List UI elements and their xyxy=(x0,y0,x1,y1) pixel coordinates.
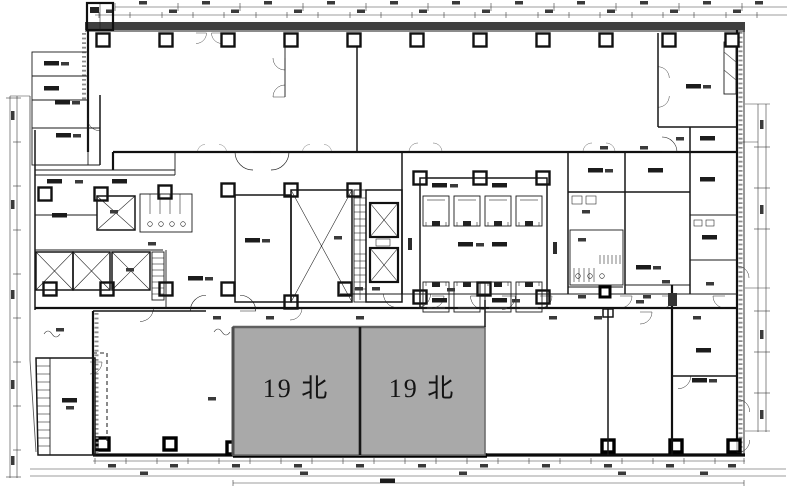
squiggle-mark xyxy=(44,331,60,337)
unit-19-north-a[interactable]: 19 北 xyxy=(233,327,360,455)
dimension-lines-left xyxy=(6,96,30,478)
core-center xyxy=(235,190,402,302)
dimension-lines-bottom xyxy=(30,458,786,486)
upper-left-rooms xyxy=(32,52,100,310)
unit-label: 19 北 xyxy=(263,374,330,403)
squiggle-mark xyxy=(214,329,230,335)
shaft-x-large-icon xyxy=(291,190,352,302)
dimension-lines-top xyxy=(95,1,787,18)
lower-right-rooms xyxy=(603,280,750,455)
shaft-x-icon xyxy=(112,252,150,290)
shaft-x-icon xyxy=(73,252,110,290)
floor-plan-page: 19 北 19 北 xyxy=(0,0,787,487)
core-corridor-east xyxy=(553,152,568,294)
vacant-units: 19 北 19 北 xyxy=(213,300,701,455)
unit-19-north-b[interactable]: 19 北 xyxy=(360,327,485,455)
core xyxy=(35,127,749,322)
upper-right-room xyxy=(658,33,737,141)
upper-floor-area xyxy=(113,33,737,170)
restrooms-east xyxy=(568,168,690,299)
floor-plan-drawing: 19 北 19 北 xyxy=(0,0,787,487)
elevator-shafts xyxy=(366,190,402,302)
core-left-wing xyxy=(35,194,213,308)
stairs-center xyxy=(354,190,366,302)
core-corridor-west xyxy=(402,152,412,294)
top-wall xyxy=(85,22,745,30)
shaft-x-icon xyxy=(97,196,135,230)
unit-label: 19 北 xyxy=(389,374,456,403)
lower-left-area xyxy=(36,295,256,455)
